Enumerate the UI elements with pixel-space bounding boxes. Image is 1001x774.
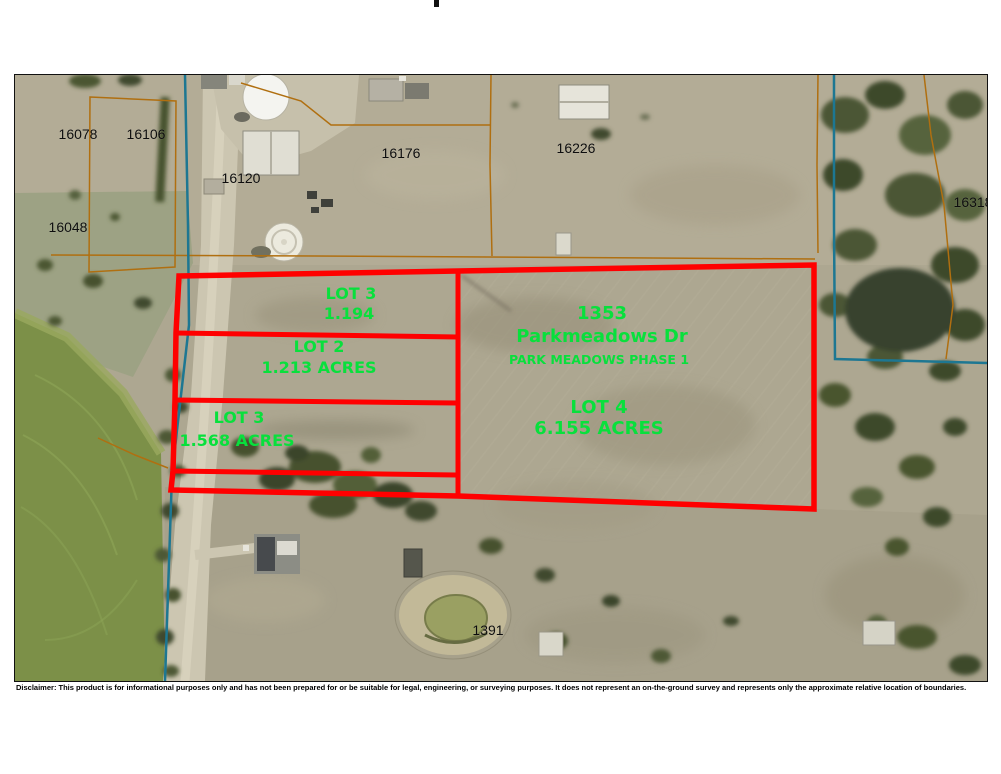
lot2-name: LOT 2	[294, 339, 345, 355]
house-16106	[201, 75, 227, 89]
barn	[404, 549, 422, 577]
shed-southeast	[863, 621, 895, 645]
house-16176	[369, 79, 403, 101]
parcel-label-1391: 1391	[472, 623, 503, 637]
aerial-photo: 16078 16106 16120 16048 16176 16226 1631…	[14, 74, 988, 682]
address-street: Parkmeadows Dr	[516, 328, 688, 346]
parcel-label-16226: 16226	[557, 141, 596, 155]
parcel-label-16078: 16078	[59, 127, 98, 141]
shed-south	[539, 632, 563, 656]
water-tower-large	[243, 75, 289, 120]
parcel-label-16318: 16318	[954, 195, 988, 209]
lot3-bottom-acreage: 1.568 ACRES	[179, 433, 294, 449]
lot3-bottom-name: LOT 3	[214, 410, 265, 426]
parcel-label-16120: 16120	[222, 171, 261, 185]
aerial-photo-art	[15, 75, 987, 681]
parcel-label-16048: 16048	[49, 220, 88, 234]
parcel-label-16106: 16106	[127, 127, 166, 141]
lot4-acreage: 6.155 ACRES	[534, 420, 663, 438]
map-export-page: 16078 16106 16120 16048 16176 16226 1631…	[0, 0, 1001, 774]
shed-16226	[556, 233, 571, 255]
lot4-name: LOT 4	[570, 399, 627, 417]
creek-pond	[845, 268, 955, 352]
parcel-label-16176: 16176	[382, 146, 421, 160]
subdivision-name: PARK MEADOWS PHASE 1	[509, 354, 689, 367]
address-number: 1353	[577, 305, 627, 323]
lot3-top-acreage: 1.194	[324, 306, 375, 322]
lot2-acreage: 1.213 ACRES	[261, 360, 376, 376]
top-edge-mark	[434, 0, 439, 7]
disclaimer-text: Disclaimer: This product is for informat…	[16, 683, 991, 692]
lot3-top-name: LOT 3	[326, 286, 377, 302]
